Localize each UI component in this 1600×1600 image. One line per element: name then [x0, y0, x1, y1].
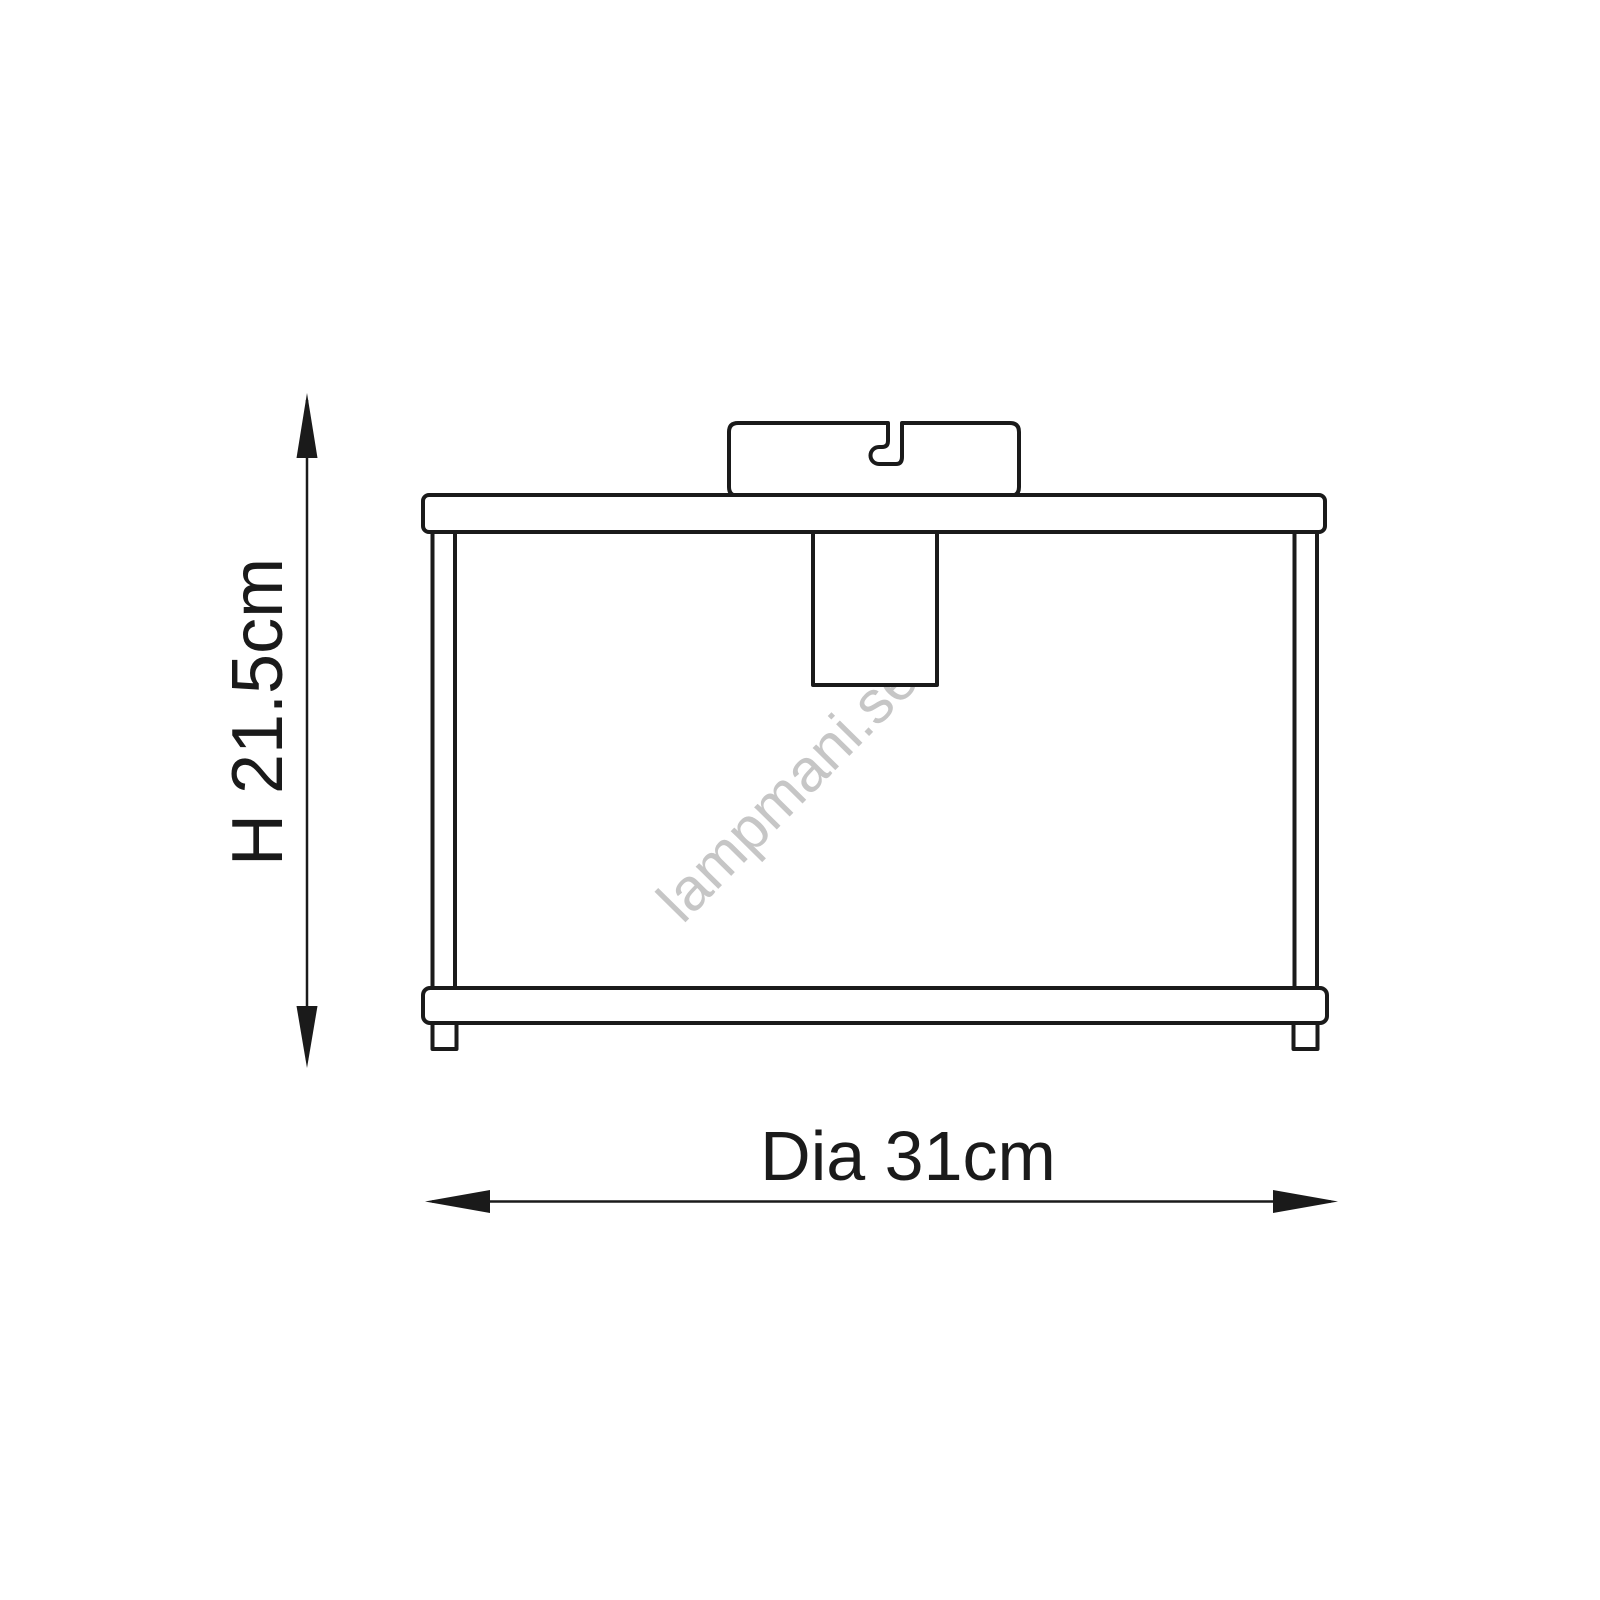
diameter-arrow-left-icon: [425, 1190, 490, 1213]
right-foot: [1294, 1023, 1318, 1049]
diameter-arrow-right-icon: [1273, 1190, 1338, 1213]
height-dimension-label: H 21.5cm: [218, 558, 298, 866]
diameter-dimension: Dia 31cm: [425, 1117, 1338, 1213]
mounting-bracket: [729, 423, 1019, 496]
height-dimension: H 21.5cm: [218, 393, 318, 1068]
diagram-canvas: lampmani.se H 21.5cm: [0, 0, 1600, 1600]
top-plate: [423, 495, 1325, 532]
watermark: lampmani.se: [644, 645, 931, 934]
height-arrow-up-icon: [297, 393, 318, 458]
left-post: [433, 528, 456, 991]
diameter-dimension-label: Dia 31cm: [760, 1117, 1056, 1195]
height-arrow-down-icon: [297, 1006, 318, 1068]
dimension-diagram: lampmani.se H 21.5cm: [0, 0, 1600, 1600]
bottom-bar: [423, 988, 1327, 1023]
right-post: [1295, 528, 1318, 991]
lamp-socket: [813, 528, 937, 685]
left-foot: [433, 1023, 457, 1049]
